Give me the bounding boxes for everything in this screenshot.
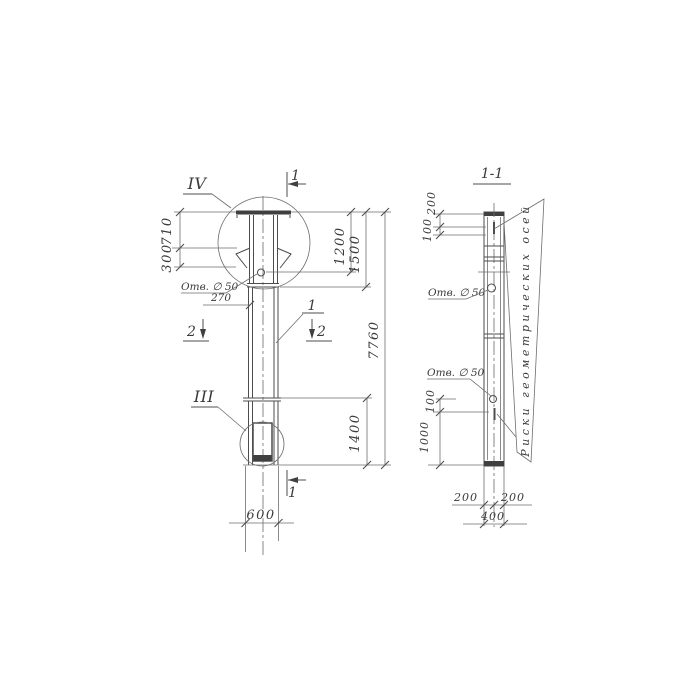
detail-marker-III: III — [191, 387, 246, 431]
dim-200-bottom-right-text: 200 — [500, 491, 525, 504]
dim-7760-text: 7760 — [367, 320, 382, 359]
section-marker-1-top: 1 — [287, 168, 306, 197]
section-marker-2-right: 2 — [306, 319, 332, 341]
cap-plate — [236, 211, 291, 215]
left-flange — [236, 248, 250, 268]
right-flange — [277, 248, 291, 268]
detail-marker-IV: IV — [183, 174, 231, 208]
hole-label-lower-right: Отв. ∅ 50 — [427, 367, 485, 379]
upper-column-walls — [250, 215, 278, 283]
dim-1400: 1400 — [281, 394, 372, 469]
dim-100-top-text: 100 — [421, 218, 434, 242]
drawing-sheet: IV III 710 300 Отв. ∅ 50 270 — [0, 0, 700, 700]
dim-600: 600 — [229, 508, 294, 527]
dim-1200-text: 1200 — [333, 226, 348, 265]
dim-200-bottom-left-text: 200 — [453, 491, 478, 504]
dim-1000-text: 1000 — [418, 421, 431, 453]
section-hole-upper — [488, 284, 496, 292]
axes-note-text: Риски геометрических осей — [519, 203, 532, 457]
dim-bottom-widths: 200 200 400 — [452, 491, 532, 528]
hole-upper — [258, 269, 265, 276]
section-marker-2-left: 2 — [183, 319, 209, 341]
dim-1200: 1200 — [266, 208, 356, 276]
left-view-elevation: IV III 710 300 Отв. ∅ 50 270 — [160, 168, 391, 556]
dim-710-text: 710 — [160, 216, 175, 245]
section-bottom-plug — [484, 461, 504, 466]
axes-note-flag: Риски геометрических осей — [494, 199, 544, 462]
hole-callout-left: Отв. ∅ 50 270 — [181, 274, 257, 309]
dim-400-bottom-text: 400 — [480, 510, 505, 523]
section-marker-1-bottom: 1 — [287, 470, 306, 501]
right-view-section-1-1: 1-1 200 — [418, 166, 544, 528]
dim-100-1000-lower: 100 1000 — [418, 389, 489, 469]
detail-IV-label: IV — [187, 174, 208, 193]
hole-label-upper-right: Отв. ∅ 50 — [428, 287, 486, 299]
section-1-bottom-label: 1 — [288, 485, 297, 501]
hole-callout-upper-right: Отв. ∅ 50 — [428, 287, 488, 299]
dim-600-text: 600 — [246, 508, 275, 523]
dim-200-top-text: 200 — [425, 191, 438, 216]
section-2-right-label: 2 — [316, 324, 326, 340]
section-1-top-label: 1 — [291, 168, 300, 184]
dim-270-text: 270 — [210, 292, 231, 304]
section-2-left-label: 2 — [186, 324, 196, 340]
section-hole-lower — [490, 396, 497, 403]
dim-200-100-top: 200 100 — [421, 191, 486, 242]
dim-100-mid-text: 100 — [424, 389, 437, 413]
dim-1500-text: 1500 — [348, 234, 363, 273]
dim-1400-text: 1400 — [348, 413, 363, 452]
section-title: 1-1 — [481, 166, 504, 182]
detail-III-label: III — [193, 387, 215, 406]
column-drawing: IV III 710 300 Отв. ∅ 50 270 — [0, 0, 700, 700]
dim-300-text: 300 — [160, 243, 175, 272]
bottom-end-plug — [254, 455, 272, 461]
dim-7760: 7760 — [367, 208, 389, 469]
position-1-label: 1 — [308, 298, 317, 314]
